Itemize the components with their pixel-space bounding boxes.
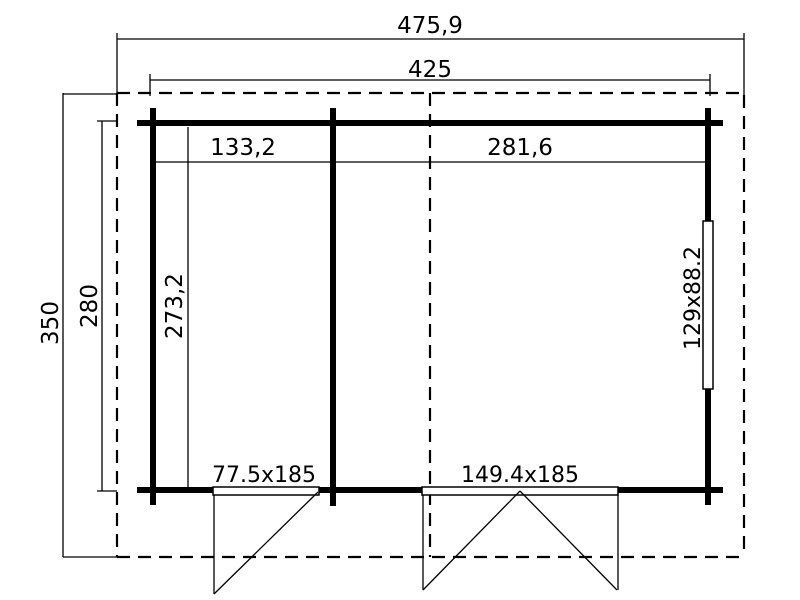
door-right-size-label: 149.4x185 (461, 463, 579, 488)
door-right: 149.4x185 (422, 463, 618, 590)
door-left-swing-diagonal (214, 492, 318, 594)
floor-plan-drawing: 129x88.2 77.5x185 149.4x185 475,9 425 35… (0, 0, 800, 600)
dim-inner-width-label: 425 (408, 57, 452, 83)
door-right-left-leaf-diagonal (423, 491, 520, 590)
dimension-inner-depth: 280 (77, 121, 117, 491)
door-left-frame (213, 487, 319, 495)
door-left-size-label: 77.5x185 (212, 463, 316, 488)
window: 129x88.2 (681, 221, 713, 389)
dim-room-left-width-label: 133,2 (210, 135, 276, 161)
dim-outer-width-label: 475,9 (397, 13, 463, 39)
dim-inner-depth-label: 280 (77, 284, 103, 328)
door-right-right-leaf-diagonal (520, 491, 617, 590)
dimension-room-depth: 273,2 (162, 127, 188, 487)
door-left: 77.5x185 (212, 463, 319, 594)
window-size-label: 129x88.2 (681, 246, 706, 350)
dim-outer-depth-label: 350 (38, 301, 64, 345)
dim-room-right-width-label: 281,6 (487, 135, 553, 161)
dim-room-depth-label: 273,2 (162, 273, 188, 339)
dimension-inner-width: 425 (150, 57, 710, 96)
floor-plan-page: 129x88.2 77.5x185 149.4x185 475,9 425 35… (0, 0, 800, 600)
